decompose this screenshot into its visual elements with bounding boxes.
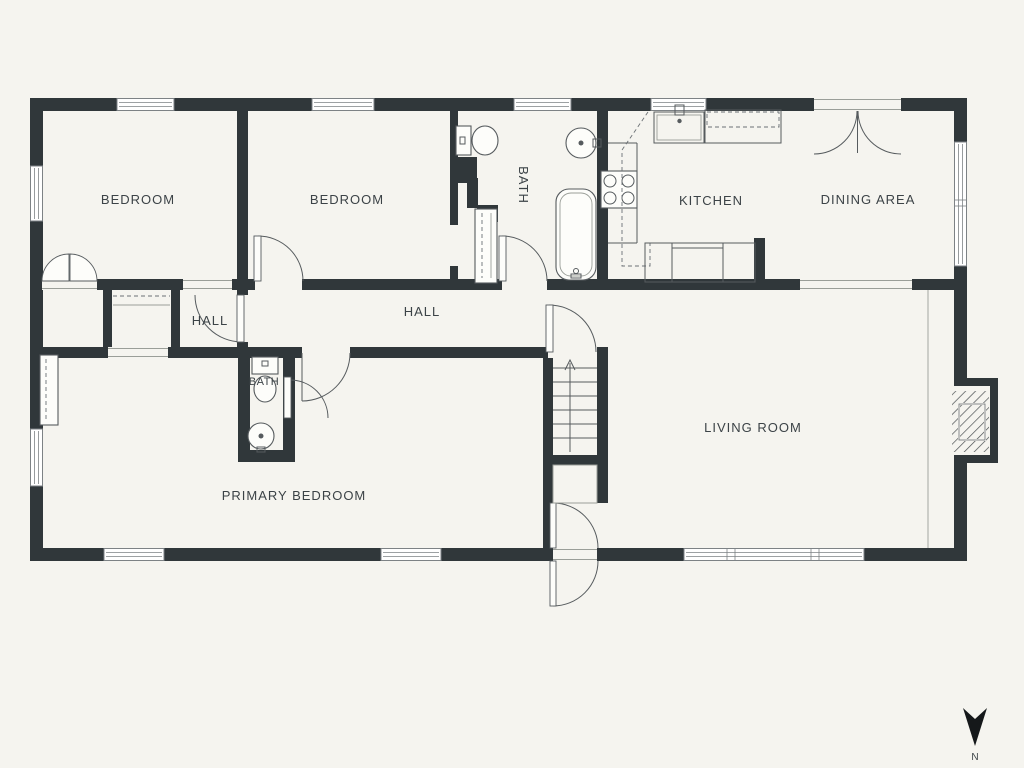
shelved-closet — [113, 296, 170, 305]
window — [104, 549, 164, 561]
bath2-fixtures — [248, 357, 278, 452]
window — [117, 99, 174, 111]
fireplace — [952, 378, 998, 463]
round-sink — [566, 128, 601, 158]
room-label-living-room: LIVING ROOM — [704, 420, 802, 435]
room-label-bath-1: BATH — [516, 166, 531, 204]
stairs — [553, 360, 597, 503]
window — [381, 549, 441, 561]
window-double — [955, 142, 967, 266]
room-label-bedroom-2: BEDROOM — [310, 192, 384, 207]
wardrobe — [40, 355, 58, 425]
door-swing — [546, 305, 596, 352]
door-swing — [499, 236, 547, 281]
compass: N — [963, 708, 987, 763]
bathtub — [556, 189, 596, 280]
room-label-hall-small: HALL — [192, 313, 229, 328]
landing — [553, 465, 597, 503]
floor-plan-canvas: BEDROOM BEDROOM BATH KITCHEN DINING AREA… — [0, 0, 1024, 768]
room-label-dining-area: DINING AREA — [821, 192, 916, 207]
room-label-bedroom-1: BEDROOM — [101, 192, 175, 207]
fireplace-hatch — [952, 391, 989, 452]
room-label-primary-bedroom: PRIMARY BEDROOM — [222, 488, 367, 503]
toilet — [456, 126, 498, 155]
sliding-closet — [475, 209, 497, 283]
window — [514, 99, 571, 111]
french-doors — [814, 111, 901, 154]
door-swing — [302, 353, 350, 401]
walls — [30, 98, 967, 561]
bifold-door — [42, 254, 97, 281]
room-label-kitchen: KITCHEN — [679, 193, 743, 208]
door-swing — [254, 236, 303, 281]
window — [31, 429, 43, 486]
window — [312, 99, 374, 111]
floor-plan: BEDROOM BEDROOM BATH KITCHEN DINING AREA… — [0, 0, 1024, 768]
window — [31, 166, 43, 221]
window-triple — [684, 549, 864, 561]
north-label: N — [971, 752, 978, 763]
north-arrow-icon — [963, 708, 987, 746]
room-labels: BEDROOM BEDROOM BATH KITCHEN DINING AREA… — [101, 166, 915, 503]
stove-icon — [601, 171, 637, 208]
windows — [31, 99, 967, 561]
room-label-hall-main: HALL — [404, 304, 441, 319]
room-label-bath-2: BATH — [249, 376, 280, 388]
round-sink — [248, 423, 274, 452]
lower-counter-dishwasher — [645, 243, 755, 282]
